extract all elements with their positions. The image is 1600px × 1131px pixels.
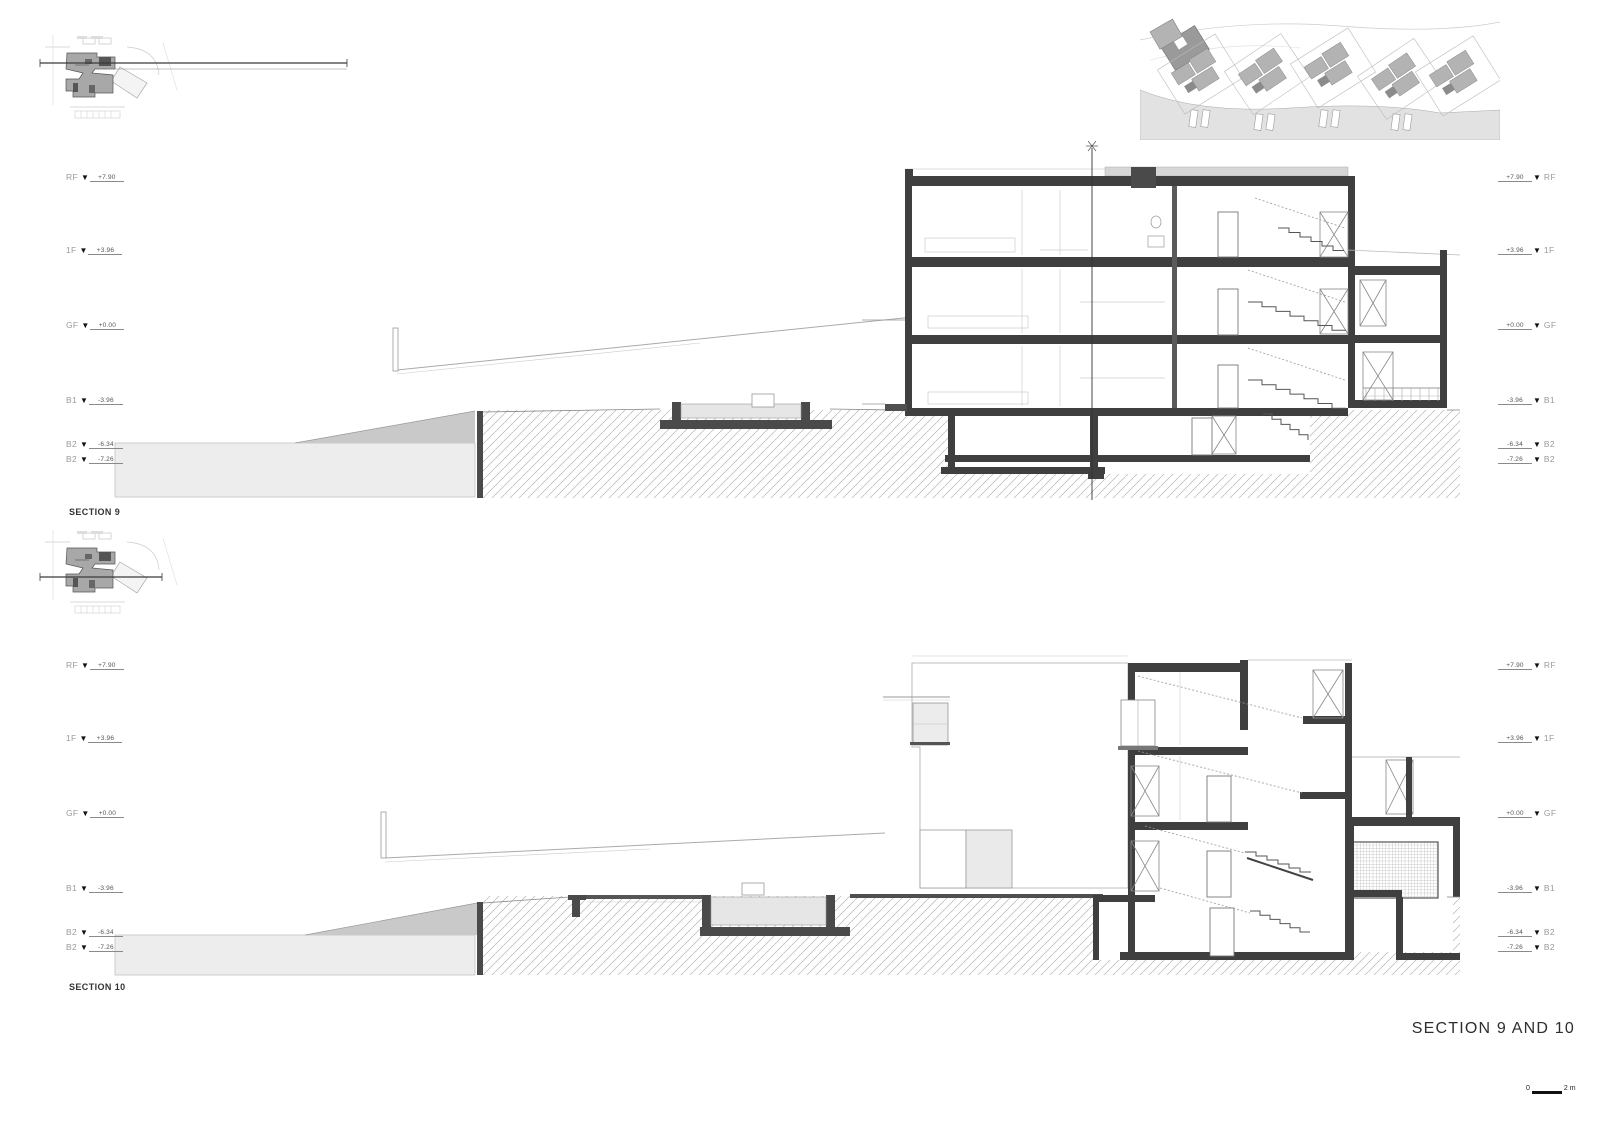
level-triangle-icon: ▼ xyxy=(1533,174,1541,182)
level-name: GF xyxy=(66,321,78,330)
level-triangle-icon: ▼ xyxy=(1533,735,1541,743)
level-triangle-icon: ▼ xyxy=(80,247,88,255)
level-name: B2 xyxy=(1544,455,1555,464)
level-marker: B2 ▼ -6.34 xyxy=(64,925,123,937)
level-marker: B1 ▼ -3.96 xyxy=(1498,881,1557,893)
level-marker: B1 ▼ -3.96 xyxy=(1498,393,1557,405)
level-name: B2 xyxy=(66,943,77,952)
level-value: -6.34 xyxy=(1498,929,1532,936)
scale-bar: 0 2 m xyxy=(1524,1085,1578,1094)
level-line: +3.96 xyxy=(88,735,122,743)
level-value: -3.96 xyxy=(89,397,123,404)
level-name: RF xyxy=(1544,661,1556,670)
level-line: +0.00 xyxy=(90,810,124,818)
scale-end: 2 m xyxy=(1564,1085,1576,1093)
level-triangle-icon: ▼ xyxy=(80,885,88,893)
level-line: +0.00 xyxy=(1498,322,1532,330)
level-value: +7.90 xyxy=(90,174,124,181)
level-line: +0.00 xyxy=(1498,810,1532,818)
level-marker: B2 ▼ -7.26 xyxy=(1498,452,1557,464)
level-name: B2 xyxy=(1544,440,1555,449)
level-line: -7.26 xyxy=(89,944,123,952)
level-triangle-icon: ▼ xyxy=(80,441,88,449)
level-triangle-icon: ▼ xyxy=(1533,441,1541,449)
level-marker: RF ▼ +7.90 xyxy=(64,658,124,670)
level-marker: B1 ▼ -3.96 xyxy=(64,881,123,893)
level-marker: B2 ▼ -6.34 xyxy=(1498,437,1557,449)
section9-label: SECTION 9 xyxy=(69,507,120,517)
level-name: RF xyxy=(66,173,78,182)
level-triangle-icon: ▼ xyxy=(1533,810,1541,818)
level-value: -6.34 xyxy=(89,441,123,448)
level-value: +3.96 xyxy=(1498,247,1532,254)
key-plan-section9 xyxy=(40,35,347,118)
level-name: B1 xyxy=(66,396,77,405)
drawing-canvas xyxy=(0,0,1600,1131)
level-value: -3.96 xyxy=(1498,885,1532,892)
level-line: -3.96 xyxy=(1498,397,1532,405)
level-line: -7.26 xyxy=(1498,944,1532,952)
level-name: 1F xyxy=(1544,246,1555,255)
level-marker: B2 ▼ -7.26 xyxy=(64,452,123,464)
level-line: +7.90 xyxy=(1498,662,1532,670)
section10-label: SECTION 10 xyxy=(69,982,126,992)
level-name: GF xyxy=(66,809,78,818)
level-marker: RF ▼ +7.90 xyxy=(1498,170,1558,182)
level-value: -6.34 xyxy=(89,929,123,936)
level-value: +7.90 xyxy=(1498,174,1532,181)
level-marker: 1F ▼ +3.96 xyxy=(1498,243,1556,255)
level-triangle-icon: ▼ xyxy=(1533,397,1541,405)
level-marker: B2 ▼ -7.26 xyxy=(64,940,123,952)
level-value: +7.90 xyxy=(90,662,124,669)
level-marker: RF ▼ +7.90 xyxy=(64,170,124,182)
level-name: 1F xyxy=(66,734,77,743)
level-triangle-icon: ▼ xyxy=(81,322,89,330)
level-line: +3.96 xyxy=(1498,735,1532,743)
level-line: -6.34 xyxy=(89,929,123,937)
level-name: GF xyxy=(1544,809,1556,818)
level-name: RF xyxy=(1544,173,1556,182)
level-value: -3.96 xyxy=(1498,397,1532,404)
level-marker: B2 ▼ -7.26 xyxy=(1498,940,1557,952)
level-name: 1F xyxy=(1544,734,1555,743)
level-value: +0.00 xyxy=(90,322,124,329)
level-triangle-icon: ▼ xyxy=(80,929,88,937)
level-name: B2 xyxy=(1544,943,1555,952)
level-marker: 1F ▼ +3.96 xyxy=(64,243,122,255)
level-triangle-icon: ▼ xyxy=(1533,885,1541,893)
level-triangle-icon: ▼ xyxy=(80,944,88,952)
level-line: +7.90 xyxy=(1498,174,1532,182)
level-line: -3.96 xyxy=(89,397,123,405)
level-triangle-icon: ▼ xyxy=(80,735,88,743)
level-marker: GF ▼ +0.00 xyxy=(1498,806,1558,818)
level-marker: B2 ▼ -6.34 xyxy=(64,437,123,449)
level-line: -3.96 xyxy=(89,885,123,893)
level-triangle-icon: ▼ xyxy=(1533,944,1541,952)
level-line: -7.26 xyxy=(1498,456,1532,464)
level-marker: GF ▼ +0.00 xyxy=(64,318,124,330)
sheet-title: SECTION 9 AND 10 xyxy=(1412,1020,1575,1038)
level-marker: B2 ▼ -6.34 xyxy=(1498,925,1557,937)
level-value: +7.90 xyxy=(1498,662,1532,669)
key-plan-section10 xyxy=(40,530,177,613)
level-value: +0.00 xyxy=(1498,322,1532,329)
level-name: 1F xyxy=(66,246,77,255)
level-line: +7.90 xyxy=(90,662,124,670)
level-line: +3.96 xyxy=(88,247,122,255)
level-value: -7.26 xyxy=(89,944,123,951)
level-line: +0.00 xyxy=(90,322,124,330)
level-line: -7.26 xyxy=(89,456,123,464)
level-line: +3.96 xyxy=(1498,247,1532,255)
level-triangle-icon: ▼ xyxy=(80,397,88,405)
level-marker: RF ▼ +7.90 xyxy=(1498,658,1558,670)
level-name: RF xyxy=(66,661,78,670)
level-triangle-icon: ▼ xyxy=(81,810,89,818)
section10-drawing xyxy=(115,656,1460,975)
level-name: B1 xyxy=(66,884,77,893)
drawing-sheet: RF ▼ +7.90 1F ▼ +3.96 GF ▼ +0.00 B1 ▼ -3… xyxy=(0,0,1600,1131)
level-value: +3.96 xyxy=(88,735,122,742)
level-triangle-icon: ▼ xyxy=(81,174,89,182)
level-marker: 1F ▼ +3.96 xyxy=(64,731,122,743)
level-name: B2 xyxy=(1544,928,1555,937)
level-marker: GF ▼ +0.00 xyxy=(1498,318,1558,330)
level-marker: B1 ▼ -3.96 xyxy=(64,393,123,405)
scale-start: 0 xyxy=(1526,1085,1530,1093)
level-value: -3.96 xyxy=(89,885,123,892)
level-value: -6.34 xyxy=(1498,441,1532,448)
level-triangle-icon: ▼ xyxy=(1533,456,1541,464)
level-line: -6.34 xyxy=(1498,441,1532,449)
level-name: B1 xyxy=(1544,884,1555,893)
scale-bar-segment xyxy=(1532,1091,1562,1094)
level-triangle-icon: ▼ xyxy=(1533,322,1541,330)
level-value: +0.00 xyxy=(1498,810,1532,817)
level-marker: GF ▼ +0.00 xyxy=(64,806,124,818)
section9-drawing xyxy=(115,141,1460,500)
level-name: B2 xyxy=(66,928,77,937)
level-line: -6.34 xyxy=(1498,929,1532,937)
level-value: -7.26 xyxy=(1498,456,1532,463)
level-name: B2 xyxy=(66,455,77,464)
level-line: +7.90 xyxy=(90,174,124,182)
level-triangle-icon: ▼ xyxy=(1533,662,1541,670)
site-plan xyxy=(1140,19,1501,140)
level-triangle-icon: ▼ xyxy=(80,456,88,464)
level-value: +3.96 xyxy=(88,247,122,254)
level-marker: 1F ▼ +3.96 xyxy=(1498,731,1556,743)
level-line: -3.96 xyxy=(1498,885,1532,893)
level-triangle-icon: ▼ xyxy=(1533,247,1541,255)
level-name: B2 xyxy=(66,440,77,449)
level-value: -7.26 xyxy=(89,456,123,463)
level-value: +3.96 xyxy=(1498,735,1532,742)
level-name: GF xyxy=(1544,321,1556,330)
level-value: -7.26 xyxy=(1498,944,1532,951)
level-line: -6.34 xyxy=(89,441,123,449)
level-value: +0.00 xyxy=(90,810,124,817)
level-name: B1 xyxy=(1544,396,1555,405)
level-triangle-icon: ▼ xyxy=(1533,929,1541,937)
level-triangle-icon: ▼ xyxy=(81,662,89,670)
